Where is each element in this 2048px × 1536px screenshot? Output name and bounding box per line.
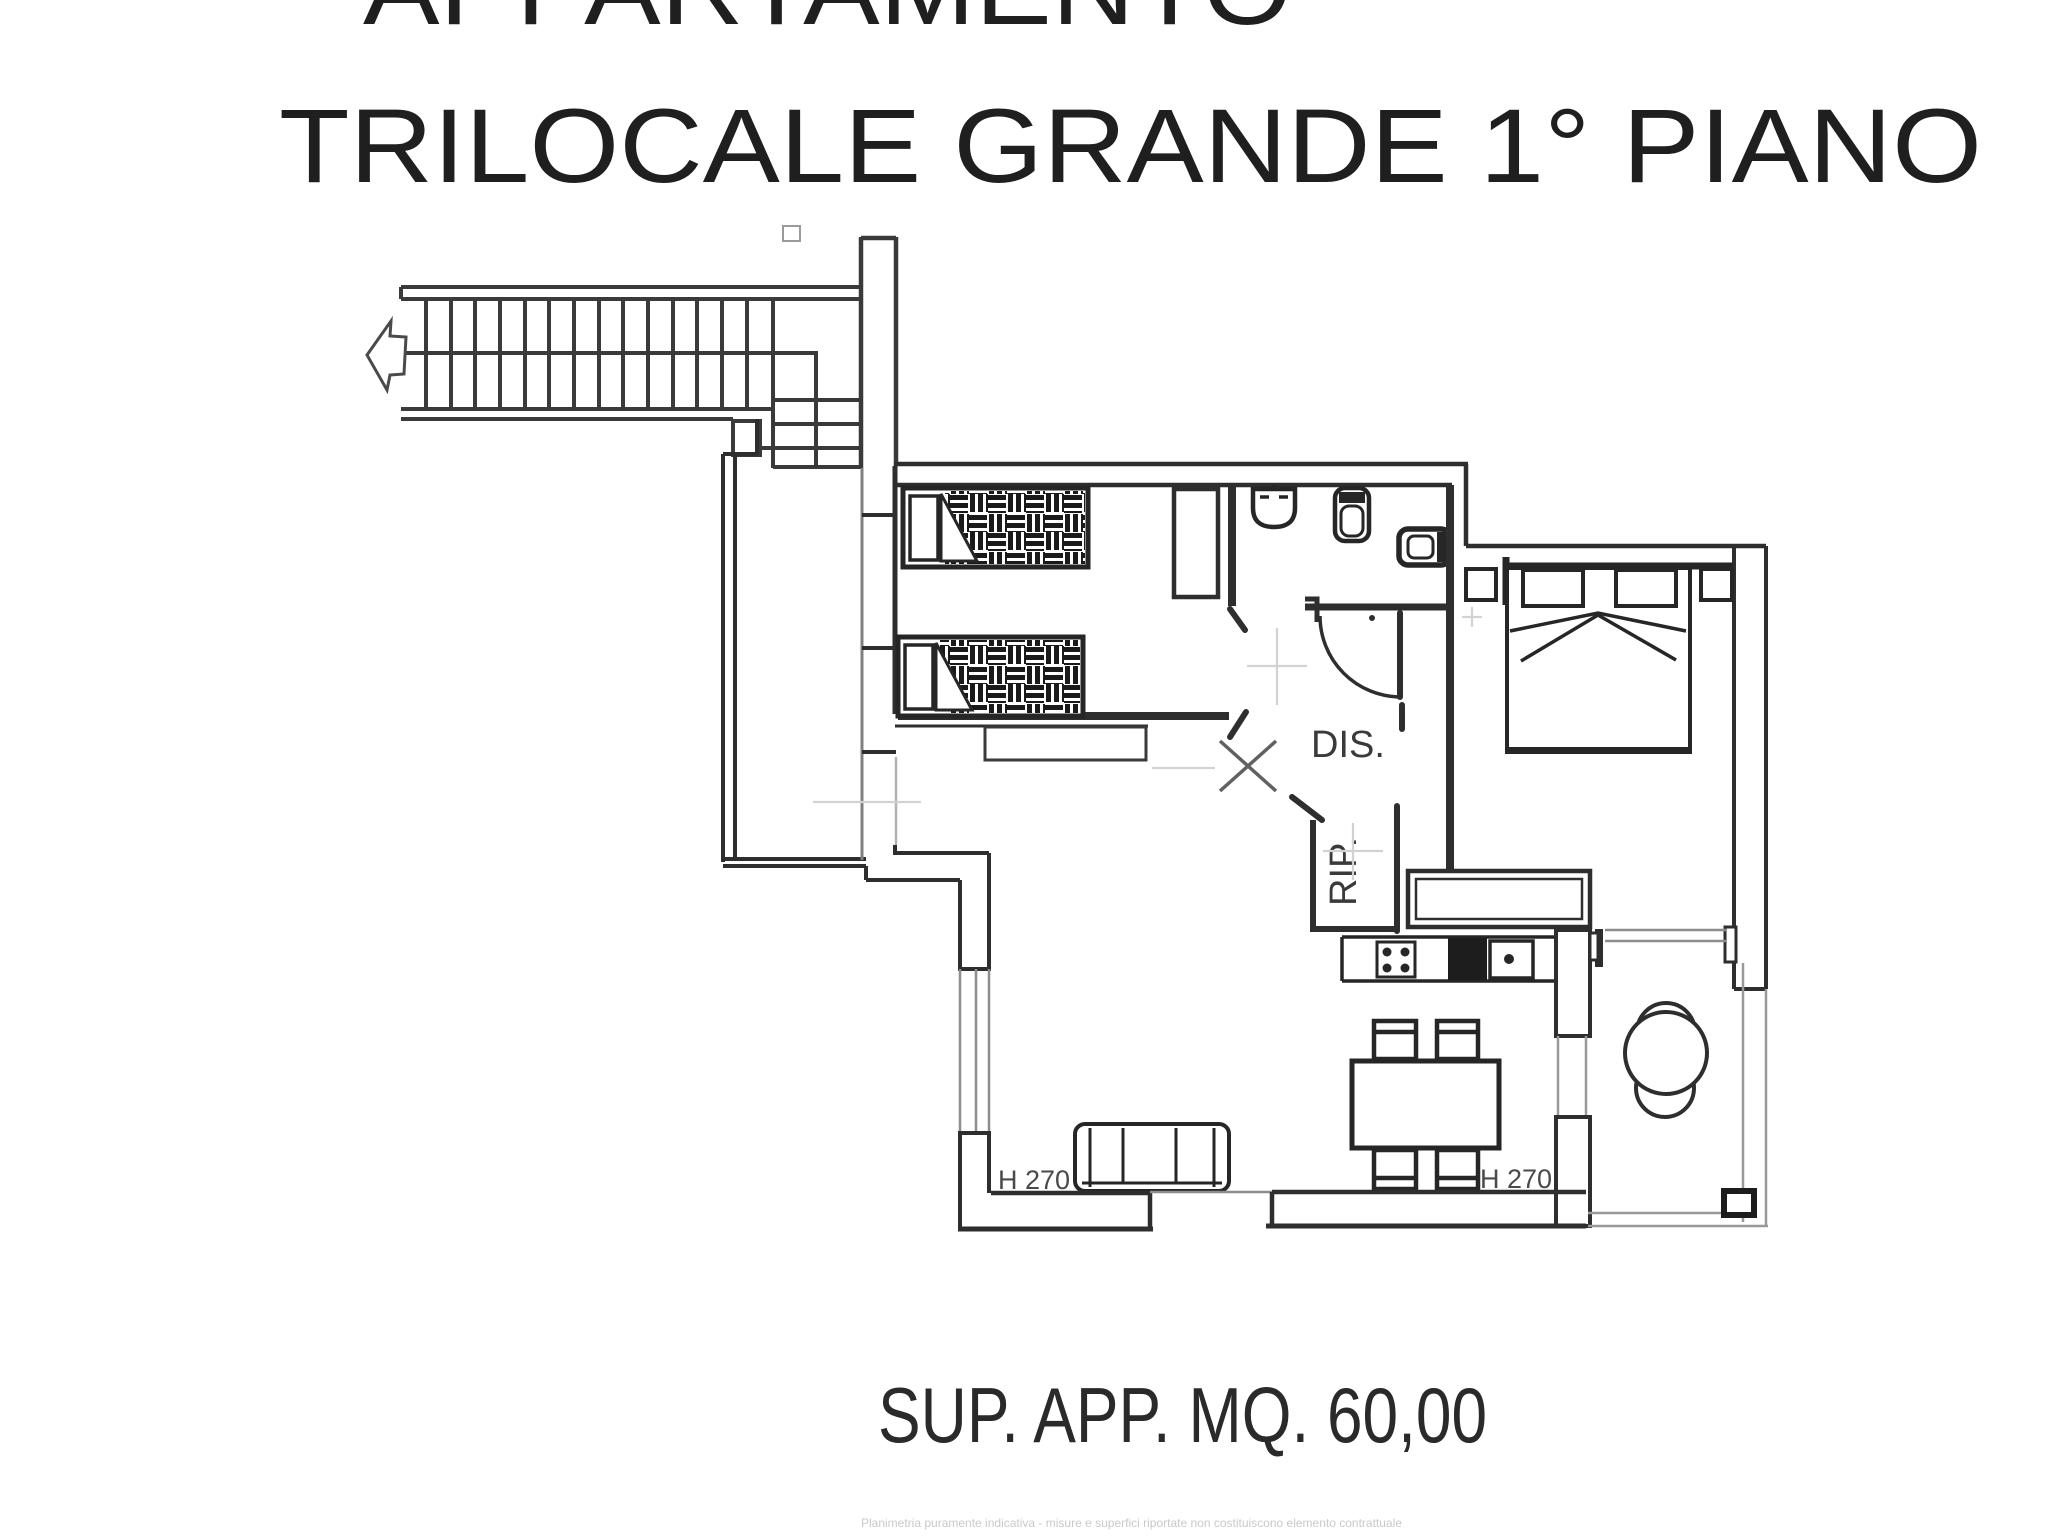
svg-text:APPARTAMENTO: APPARTAMENTO (363, 0, 1292, 47)
svg-text:RIP.: RIP. (1323, 837, 1365, 906)
svg-text:H 270: H 270 (1480, 1164, 1552, 1194)
svg-text:Planimetria puramente indicati: Planimetria puramente indicativa - misur… (861, 1516, 1402, 1530)
svg-text:SUP. APP. MQ. 60,00: SUP. APP. MQ. 60,00 (878, 1371, 1487, 1459)
svg-text:TRILOCALE GRANDE 1° PIANO: TRILOCALE GRANDE 1° PIANO (279, 88, 1982, 205)
svg-text:DIS.: DIS. (1311, 724, 1385, 766)
svg-text:H 270: H 270 (998, 1165, 1070, 1195)
